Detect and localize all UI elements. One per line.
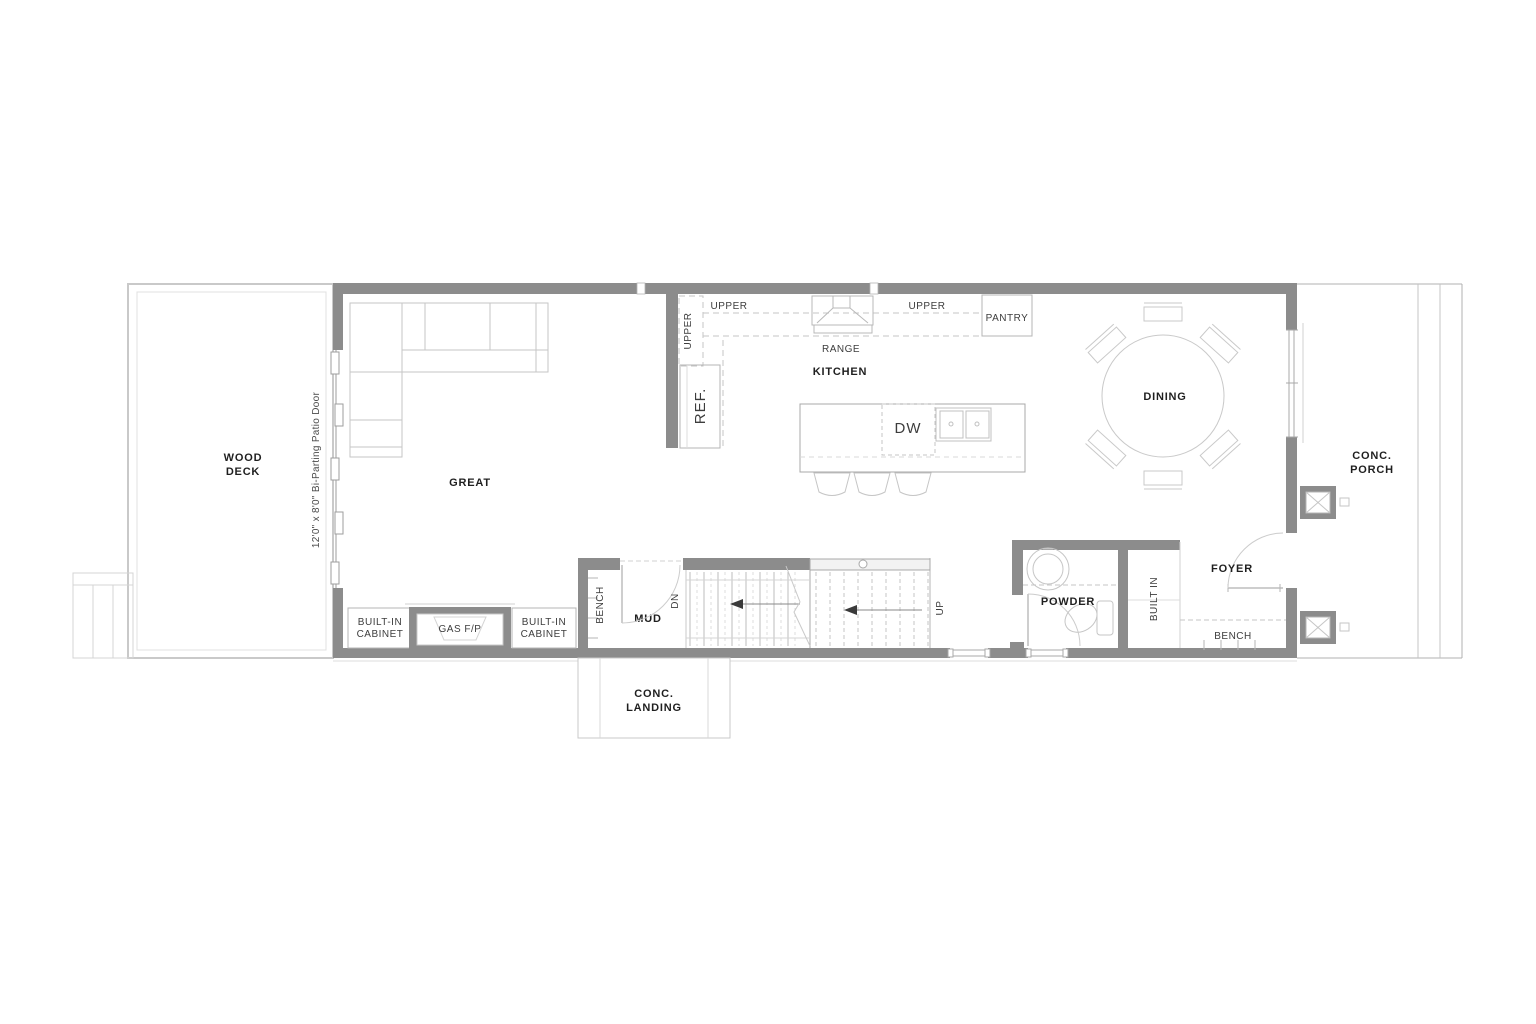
kitchen: UPPER UPPER UPPER RANGE KITCHEN PANTRY R… [679,295,1032,496]
range-label: RANGE [822,344,860,355]
built-in-label: BUILT IN [1149,577,1160,621]
sectional-sofa [350,303,548,457]
wood-deck-label-line2: DECK [226,466,260,478]
powder-label: POWDER [1041,596,1095,608]
wood-deck-label-line1: WOOD [224,452,263,464]
range-hood-icon [812,296,873,333]
upper-vertical-label: UPPER [683,313,694,350]
upper-right-label: UPPER [909,301,946,312]
floor-plan-drawing: WOOD DECK 12'0" x 8'0" Bi-Parting Patio … [0,0,1536,1024]
window-2 [1026,648,1068,658]
dining-window [1286,323,1303,443]
conc-porch-label-1: CONC. [1352,450,1391,462]
stairs-down-flight [686,566,810,646]
mud-bench-label: BENCH [595,586,606,624]
double-sink-icon [936,408,991,441]
stair-arrow-up [844,605,857,615]
stair-railing [810,559,930,570]
floor-plan-canvas: WOOD DECK 12'0" x 8'0" Bi-Parting Patio … [0,0,1536,1024]
bar-stools [814,473,931,496]
window-1 [948,648,990,658]
pantry-label: PANTRY [986,313,1029,324]
conc-landing-label-1: CONC. [634,688,673,700]
concrete-landing: CONC. LANDING [578,658,730,738]
foyer-bench-label: BENCH [1214,631,1252,642]
kitchen-label: KITCHEN [813,366,868,378]
dw-label: DW [895,420,922,437]
ref-label: REF. [692,388,709,425]
conc-landing-label-2: LANDING [626,702,682,714]
mud-label: MUD [634,613,661,625]
builtin-cabinet-right-label-2: CABINET [521,629,568,640]
refrigerator: REF. [680,365,720,448]
powder-room: POWDER [1023,548,1118,646]
gas-fp-label: GAS F/P [439,624,482,635]
staircase: UP [686,558,946,648]
interior-walls [578,283,1180,650]
stairs-up-flight [816,572,928,646]
patio-door-label: 12'0" x 8'0" Bi-Parting Patio Door [311,392,322,549]
foyer: FOYER BENCH [1180,533,1286,650]
patio-door: 12'0" x 8'0" Bi-Parting Patio Door [311,350,343,588]
builtin-cabinet-left-label-1: BUILT-IN [358,617,402,628]
kitchen-island: DW [800,404,1025,496]
porch-column-bottom [1300,611,1349,644]
great-room: GREAT [350,303,548,489]
great-room-label: GREAT [449,477,491,489]
mud-room: BENCH MUD DN [588,561,683,638]
dn-label: DN [670,593,681,608]
wood-deck: WOOD DECK [73,284,333,658]
fireplace-wall: BUILT-IN CABINET GAS F/P BUILT-IN CABINE… [348,604,576,652]
foyer-bench: BENCH [1180,620,1286,650]
builtin-cabinet-left-label-2: CABINET [357,629,404,640]
dining-label: DINING [1143,391,1186,403]
built-in-closet: BUILT IN [1128,542,1180,648]
conc-porch-label-2: PORCH [1350,464,1394,476]
powder-sink-icon [1027,548,1069,590]
deck-steps [73,573,133,658]
stair-break-line [786,566,810,646]
builtin-cabinet-right-label-1: BUILT-IN [522,617,566,628]
concrete-porch: CONC. PORCH [1297,284,1462,658]
dining-room: DINING [1086,303,1303,489]
foyer-label: FOYER [1211,563,1253,575]
porch-column-top [1300,486,1349,519]
up-label: UP [935,601,946,616]
upper-left-label: UPPER [711,301,748,312]
